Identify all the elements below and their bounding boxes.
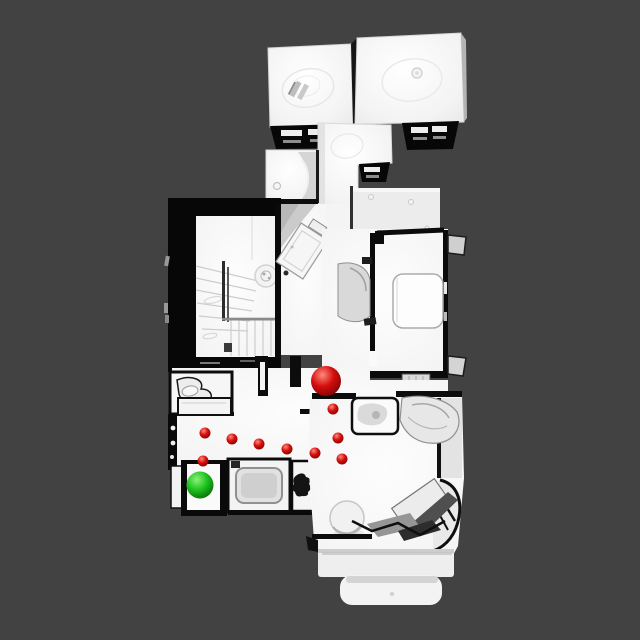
mesh-detail xyxy=(224,343,232,352)
mesh-detail xyxy=(413,137,427,140)
mesh-detail xyxy=(415,71,419,75)
mesh-detail xyxy=(170,455,174,459)
mesh-detail xyxy=(409,200,414,205)
path-waypoint-5 xyxy=(282,444,293,455)
mesh-detail xyxy=(411,127,428,133)
doorframe-right xyxy=(290,356,301,387)
mesh-detail xyxy=(322,552,452,555)
mesh-detail xyxy=(432,126,447,132)
mesh-detail xyxy=(284,271,289,276)
mesh-detail xyxy=(228,510,314,515)
mesh-detail xyxy=(375,231,384,244)
mesh-detail xyxy=(281,130,302,136)
mesh-detail xyxy=(268,277,270,279)
mesh-detail xyxy=(396,391,462,397)
mesh-detail xyxy=(402,121,459,150)
mesh-detail xyxy=(444,312,447,321)
hall-shelf xyxy=(178,398,231,415)
bedroom-top-wall xyxy=(377,230,444,233)
mesh-detail xyxy=(366,175,379,178)
roof-box-right xyxy=(355,33,464,124)
bed xyxy=(393,274,443,328)
path-waypoint-8 xyxy=(200,428,211,439)
mesh-detail xyxy=(312,534,372,539)
mesh-detail xyxy=(372,411,380,419)
mesh-detail xyxy=(338,263,370,322)
mesh-detail xyxy=(364,167,380,172)
bathtub xyxy=(228,459,290,512)
mesh-detail xyxy=(316,150,319,203)
mesh-detail xyxy=(165,315,169,323)
bedroom-upper-landing xyxy=(352,188,440,232)
mesh-detail xyxy=(164,303,168,313)
living-room xyxy=(306,391,464,560)
path-waypoint-9 xyxy=(198,456,209,467)
mesh-detail xyxy=(222,261,225,321)
mesh-detail xyxy=(227,267,229,322)
mesh-detail xyxy=(433,136,446,139)
mesh-detail xyxy=(350,186,353,232)
mesh-detail xyxy=(171,426,176,431)
goal-sphere xyxy=(187,472,214,499)
path-waypoint-4 xyxy=(310,448,321,459)
path-waypoint-3 xyxy=(337,454,348,465)
mesh-detail xyxy=(231,461,240,468)
mesh-detail xyxy=(318,124,325,206)
roof-box-left xyxy=(268,44,353,127)
bedroom-left-wall xyxy=(370,233,375,352)
mesh-detail xyxy=(200,362,220,364)
mesh-detail xyxy=(390,592,394,596)
mesh-detail xyxy=(222,318,275,321)
mesh-detail xyxy=(352,188,440,192)
mesh-detail xyxy=(181,510,227,516)
mesh-detail xyxy=(283,140,301,143)
mesh-detail xyxy=(346,576,438,583)
mesh-detail xyxy=(393,274,443,328)
mesh-detail xyxy=(369,351,377,366)
path-waypoint-6 xyxy=(254,439,265,450)
mesh-detail xyxy=(263,273,266,276)
roof-underside-right xyxy=(402,121,459,150)
path-waypoint-2 xyxy=(333,433,344,444)
mesh-detail xyxy=(240,360,256,362)
radiator-tab-top xyxy=(448,235,466,255)
path-waypoint-7 xyxy=(227,434,238,445)
mesh-detail xyxy=(255,265,277,287)
radiator-tab-bottom xyxy=(448,356,466,376)
mesh-detail xyxy=(444,282,447,294)
stairwell-right-wall xyxy=(275,205,281,358)
mesh-detail xyxy=(260,362,265,390)
mesh-detail xyxy=(241,473,277,498)
mesh-detail xyxy=(291,246,294,249)
scene-svg[interactable] xyxy=(0,0,640,640)
agent-position-sphere xyxy=(311,366,341,396)
path-waypoint-1 xyxy=(328,404,339,415)
mesh-viewer-canvas[interactable] xyxy=(0,0,640,640)
mesh-detail xyxy=(178,398,231,415)
mesh-detail xyxy=(362,257,372,264)
stairwell-room xyxy=(164,198,281,372)
roof-underside-middle xyxy=(359,162,390,182)
mesh-detail xyxy=(171,441,176,446)
kitchen-island xyxy=(352,398,398,434)
potted-plant xyxy=(255,265,277,287)
mesh-detail xyxy=(369,195,374,200)
